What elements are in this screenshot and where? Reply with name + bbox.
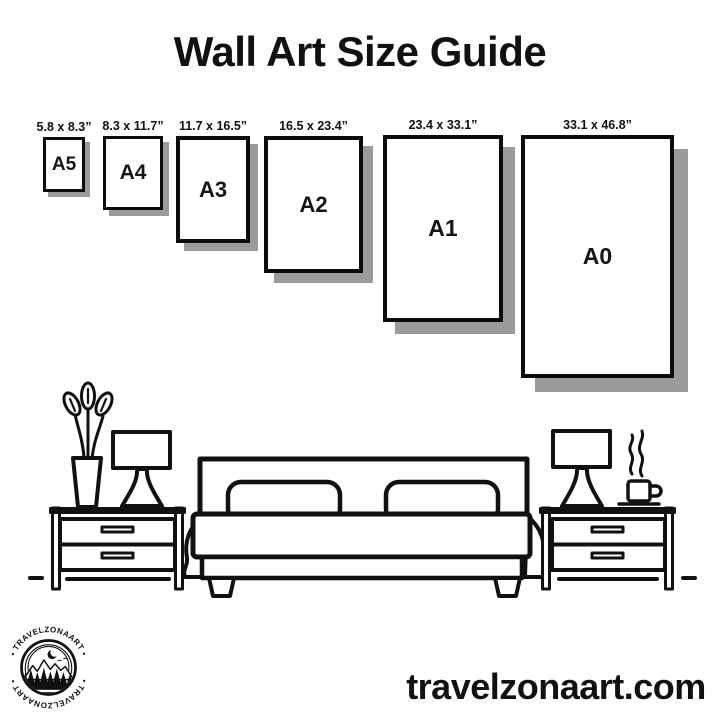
vase-plant-icon — [61, 383, 116, 507]
mattress — [193, 514, 530, 557]
paper-rectangle: A2 — [264, 136, 363, 273]
lamp-shade — [113, 432, 170, 468]
size-code-label: A1 — [428, 215, 457, 242]
nightstand-top — [539, 507, 676, 514]
paper-rectangle: A1 — [383, 135, 503, 322]
bed-frame — [202, 557, 522, 578]
table-lamp-left-icon — [113, 432, 170, 506]
size-code-label: A3 — [199, 177, 227, 203]
size-dimensions-label: 16.5 x 23.4” — [279, 119, 348, 133]
paper-size-a1: 23.4 x 33.1” A1 — [383, 135, 503, 322]
size-code-label: A5 — [52, 154, 76, 176]
size-dimensions-label: 5.8 x 8.3” — [37, 120, 92, 134]
drawer-handle — [592, 553, 623, 558]
website-url: travelzonaart.com — [400, 666, 712, 708]
page-title: Wall Art Size Guide — [0, 28, 720, 76]
size-code-label: A4 — [120, 161, 147, 185]
paper-size-a0: 33.1 x 46.8” A0 — [521, 135, 674, 378]
bed-leg-right — [495, 578, 520, 596]
table-lamp-right-icon — [553, 431, 610, 506]
steam-icon — [639, 431, 642, 476]
lamp-shade — [553, 431, 610, 467]
plant-stem — [75, 414, 84, 458]
nightstand-leg — [543, 508, 550, 589]
coffee-cup-icon — [619, 431, 661, 504]
nightstand-right — [539, 507, 676, 589]
paper-size-a5: 5.8 x 8.3” A5 — [43, 137, 85, 192]
paper-rectangle: A3 — [176, 136, 250, 243]
lamp-base — [562, 468, 602, 506]
paper-size-a4: 8.3 x 11.7” A4 — [103, 136, 163, 210]
lamp-base — [122, 469, 162, 506]
paper-rectangle: A5 — [43, 137, 85, 192]
nightstand-top — [49, 507, 186, 514]
size-dimensions-label: 33.1 x 46.8” — [563, 118, 632, 132]
paper-rectangle: A0 — [521, 135, 674, 378]
drawer-handle — [102, 553, 133, 558]
paper-size-a2: 16.5 x 23.4” A2 — [264, 136, 363, 273]
size-code-label: A2 — [299, 192, 327, 218]
cup-body — [628, 481, 650, 501]
bed-leg-left — [209, 578, 234, 596]
nightstand-left — [49, 507, 186, 589]
vase — [73, 458, 101, 507]
water-line — [28, 696, 69, 698]
steam-icon — [630, 435, 633, 474]
size-dimensions-label: 23.4 x 33.1” — [409, 118, 478, 132]
size-code-label: A0 — [583, 243, 612, 270]
bed-icon — [184, 459, 546, 596]
logo-badge: • TRAVELZONAART • • TRAVELZONAART • — [2, 621, 95, 714]
drawer-handle — [102, 527, 133, 532]
size-dimensions-label: 8.3 x 11.7” — [102, 119, 163, 133]
bedroom-illustration — [25, 380, 705, 605]
drawer-handle — [592, 527, 623, 532]
size-dimensions-label: 11.7 x 16.5” — [179, 119, 247, 133]
paper-size-a3: 11.7 x 16.5” A3 — [176, 136, 250, 243]
moon-crescent-cut — [50, 648, 59, 657]
paper-rectangle: A4 — [103, 136, 163, 210]
plant-stem — [92, 416, 103, 458]
